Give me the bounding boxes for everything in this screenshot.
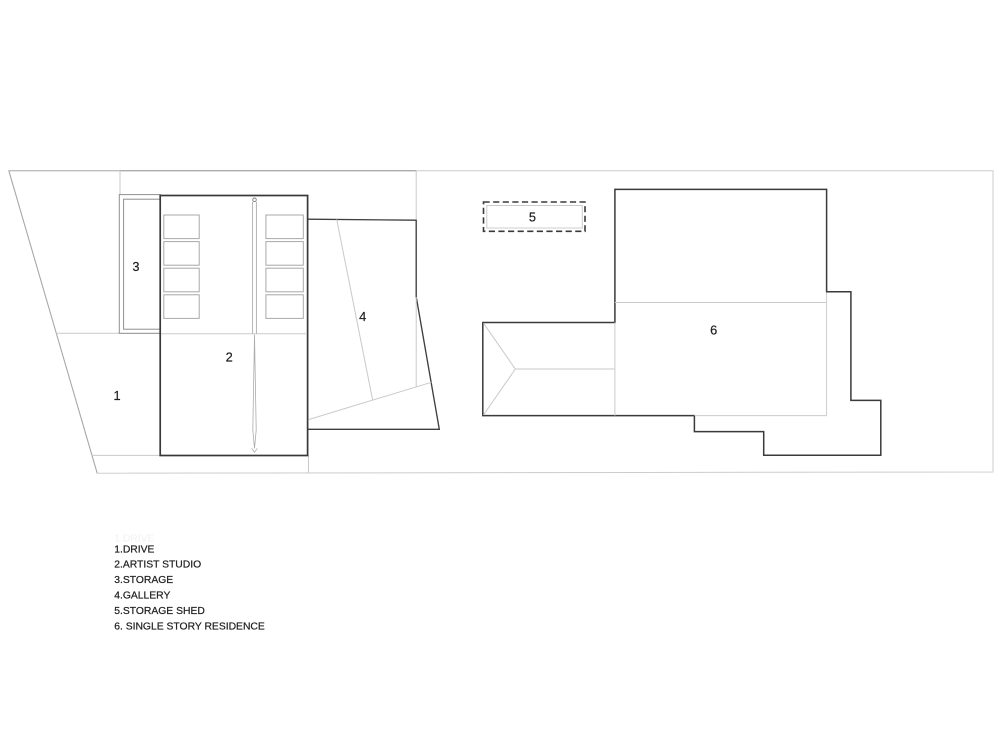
svg-text:1: 1 [113, 388, 120, 403]
svg-text:5: 5 [529, 210, 536, 225]
svg-text:1.DRIVE: 1.DRIVE [114, 544, 154, 555]
svg-text:2: 2 [226, 350, 233, 365]
svg-text:2.ARTIST STUDIO: 2.ARTIST STUDIO [114, 560, 201, 571]
svg-text:1.DRIVE: 1.DRIVE [114, 534, 154, 545]
svg-text:3.STORAGE: 3.STORAGE [114, 575, 173, 586]
svg-text:6. SINGLE STORY RESIDENCE: 6. SINGLE STORY RESIDENCE [114, 622, 265, 633]
svg-text:5.STORAGE SHED: 5.STORAGE SHED [114, 606, 205, 617]
svg-text:6: 6 [710, 323, 717, 338]
svg-text:4.GALLERY: 4.GALLERY [114, 591, 170, 602]
svg-text:4: 4 [359, 309, 366, 324]
svg-text:3: 3 [132, 259, 139, 274]
